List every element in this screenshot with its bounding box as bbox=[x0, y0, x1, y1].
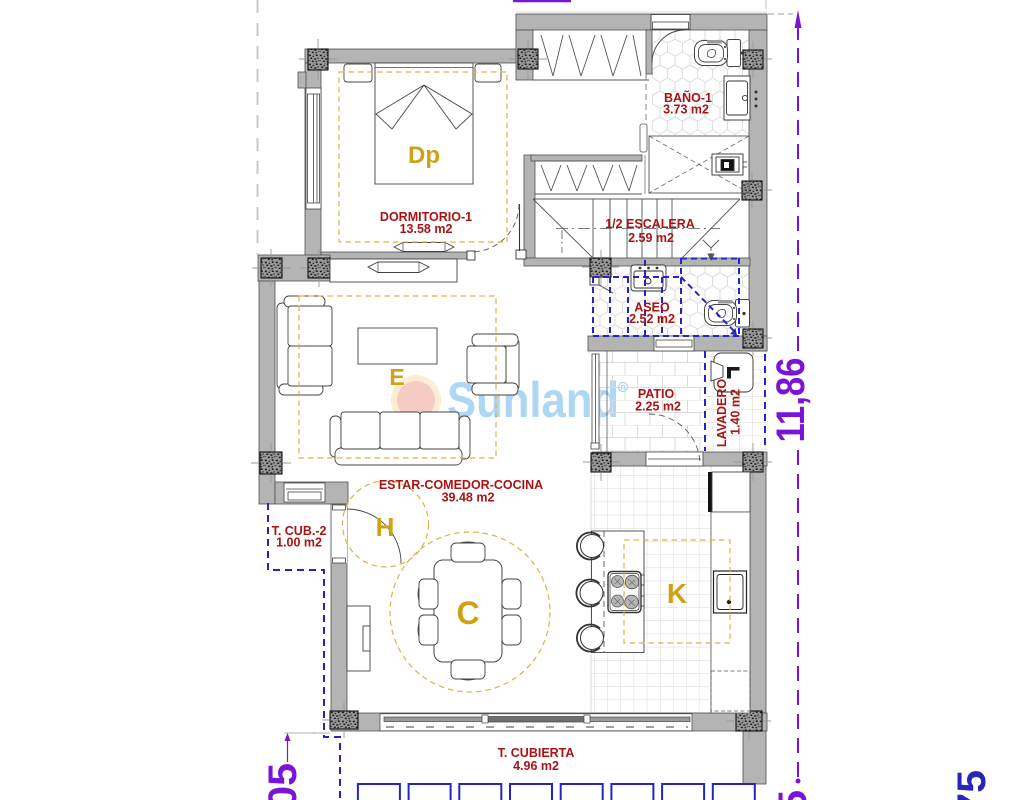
svg-text:3.73 m2: 3.73 m2 bbox=[663, 103, 709, 117]
svg-text:C: C bbox=[456, 595, 479, 631]
svg-text:T. CUBIERTA: T. CUBIERTA bbox=[498, 746, 575, 760]
svg-text:13.58 m2: 13.58 m2 bbox=[400, 222, 453, 236]
svg-text:E: E bbox=[389, 364, 404, 390]
svg-text:Dp: Dp bbox=[408, 142, 440, 169]
svg-text:2.59 m2: 2.59 m2 bbox=[628, 231, 674, 245]
svg-text:39.48 m2: 39.48 m2 bbox=[442, 491, 495, 505]
svg-text:K: K bbox=[667, 578, 687, 609]
svg-text:1.00 m2: 1.00 m2 bbox=[276, 536, 322, 550]
svg-text:4.96 m2: 4.96 m2 bbox=[513, 759, 559, 773]
svg-text:LAVADERO: LAVADERO bbox=[715, 379, 729, 448]
svg-text:11,86: 11,86 bbox=[769, 358, 813, 443]
svg-text:2.25 m2: 2.25 m2 bbox=[635, 400, 681, 414]
svg-text:1.40 m2: 1.40 m2 bbox=[729, 389, 743, 435]
svg-text:2.52 m2: 2.52 m2 bbox=[629, 312, 675, 326]
svg-text:4,75: 4,75 bbox=[950, 770, 994, 800]
svg-text:3,05: 3,05 bbox=[261, 763, 305, 800]
svg-text:H: H bbox=[376, 512, 395, 542]
svg-text:1/2 ESCALERA: 1/2 ESCALERA bbox=[605, 217, 695, 231]
svg-text:3,05: 3,05 bbox=[771, 790, 815, 800]
